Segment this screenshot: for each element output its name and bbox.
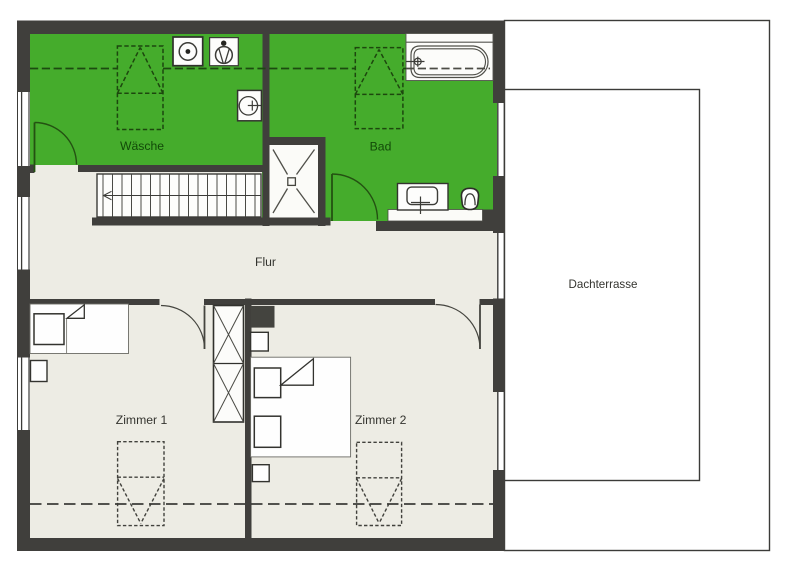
svg-text:Wäsche: Wäsche (120, 139, 164, 153)
svg-text:Flur: Flur (255, 255, 276, 269)
svg-text:Bad: Bad (370, 140, 392, 154)
svg-text:Zimmer 1: Zimmer 1 (116, 413, 168, 427)
svg-text:Dachterrasse: Dachterrasse (569, 278, 638, 291)
svg-text:Zimmer 2: Zimmer 2 (355, 413, 407, 427)
